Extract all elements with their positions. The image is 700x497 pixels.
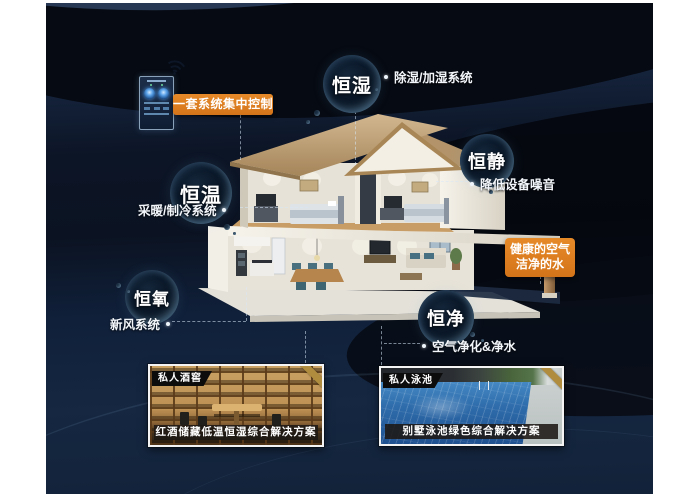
- mini-bubble: [224, 224, 230, 230]
- phone-text-bar: [144, 113, 169, 115]
- corner-ribbon: [300, 366, 322, 388]
- bullet-dot: [166, 322, 170, 326]
- connector-hengjing2: [384, 343, 420, 344]
- mini-bubble: [314, 110, 320, 116]
- phone-status-dot: [150, 84, 152, 86]
- connector-control-badge: [240, 115, 241, 160]
- phone-segment: [154, 107, 160, 110]
- connector-hengyang-up: [246, 287, 247, 321]
- bubble-hengshi-label: 恒湿: [332, 71, 372, 98]
- phone-knob: [144, 88, 155, 99]
- connector-hengwen: [240, 207, 308, 208]
- wine-table-leg: [234, 411, 239, 425]
- connector-wine-card: [305, 331, 306, 363]
- pool-card: 私人泳池 别墅泳池绿色综合解决方案: [379, 366, 564, 446]
- label-text: 除湿/加湿系统: [394, 67, 472, 86]
- label-hengjing-desc: 降低设备噪音: [470, 174, 555, 193]
- bubble-hengjing-label: 恒静: [468, 148, 506, 174]
- connector-hengjing: [436, 181, 468, 182]
- control-badge: 一套系统集中控制: [173, 94, 273, 115]
- wine-table: [212, 404, 262, 411]
- mini-bubble: [127, 290, 130, 293]
- label-text: 新风系统: [110, 314, 160, 333]
- mini-bubble: [375, 88, 378, 91]
- pool-ladder: [479, 381, 489, 390]
- label-hengshi-desc: 除湿/加湿系统: [384, 67, 472, 86]
- healthy-air-line2: 洁净的水: [505, 257, 575, 272]
- phone-status-dot: [161, 84, 163, 86]
- phone-knob: [158, 88, 169, 99]
- wine-cellar-card: 私人酒窖 红酒储藏低温恒湿综合解决方案: [148, 364, 324, 447]
- control-panel-phone: [139, 76, 174, 130]
- phone-text-bar: [144, 102, 169, 104]
- phone-titlebar: [147, 80, 166, 82]
- phone-segment: [144, 107, 150, 110]
- wine-stool: [180, 412, 189, 425]
- pool-card-tag: 私人泳池: [383, 373, 443, 388]
- label-hengwen-desc: 采暖/制冷系统: [138, 200, 226, 219]
- mini-bubble: [233, 232, 236, 235]
- corner-ribbon: [540, 368, 562, 390]
- healthy-air-line1: 健康的空气: [505, 242, 575, 257]
- smart-home-infographic: 一套系统集中控制 健康的空气 洁净的水 恒湿 恒静 恒温 恒氧 恒净 除湿/加湿…: [0, 0, 700, 497]
- label-text: 空气净化&净水: [432, 336, 516, 355]
- mini-bubble: [116, 283, 121, 288]
- label-hengjing2-desc: 空气净化&净水: [422, 336, 516, 355]
- bullet-dot: [222, 208, 226, 212]
- bullet-dot: [470, 182, 474, 186]
- control-badge-label: 一套系统集中控制: [173, 97, 273, 111]
- phone-segment: [163, 107, 169, 110]
- label-text: 采暖/制冷系统: [138, 200, 216, 219]
- mini-bubble: [306, 120, 310, 124]
- pool-water-glare: [411, 394, 471, 420]
- bullet-dot: [422, 344, 426, 348]
- wine-card-caption: 红酒储藏低温恒湿综合解决方案: [154, 425, 318, 440]
- pool-card-caption: 别墅泳池绿色综合解决方案: [385, 424, 558, 439]
- house-cutaway-illustration: [192, 106, 564, 346]
- wine-card-tag: 私人酒窖: [152, 371, 212, 386]
- healthy-air-badge: 健康的空气 洁净的水: [505, 238, 575, 277]
- connector-hengyang: [172, 321, 246, 322]
- bubble-hengjing2-label: 恒净: [427, 305, 465, 331]
- bubble-hengshi: 恒湿: [323, 55, 381, 113]
- label-text: 降低设备噪音: [480, 174, 555, 193]
- connector-pool-card: [381, 326, 382, 365]
- bubble-hengyang-label: 恒氧: [134, 285, 170, 310]
- connector-hengshi: [355, 111, 356, 165]
- bullet-dot: [384, 75, 388, 79]
- label-hengyang-desc: 新风系统: [110, 314, 170, 333]
